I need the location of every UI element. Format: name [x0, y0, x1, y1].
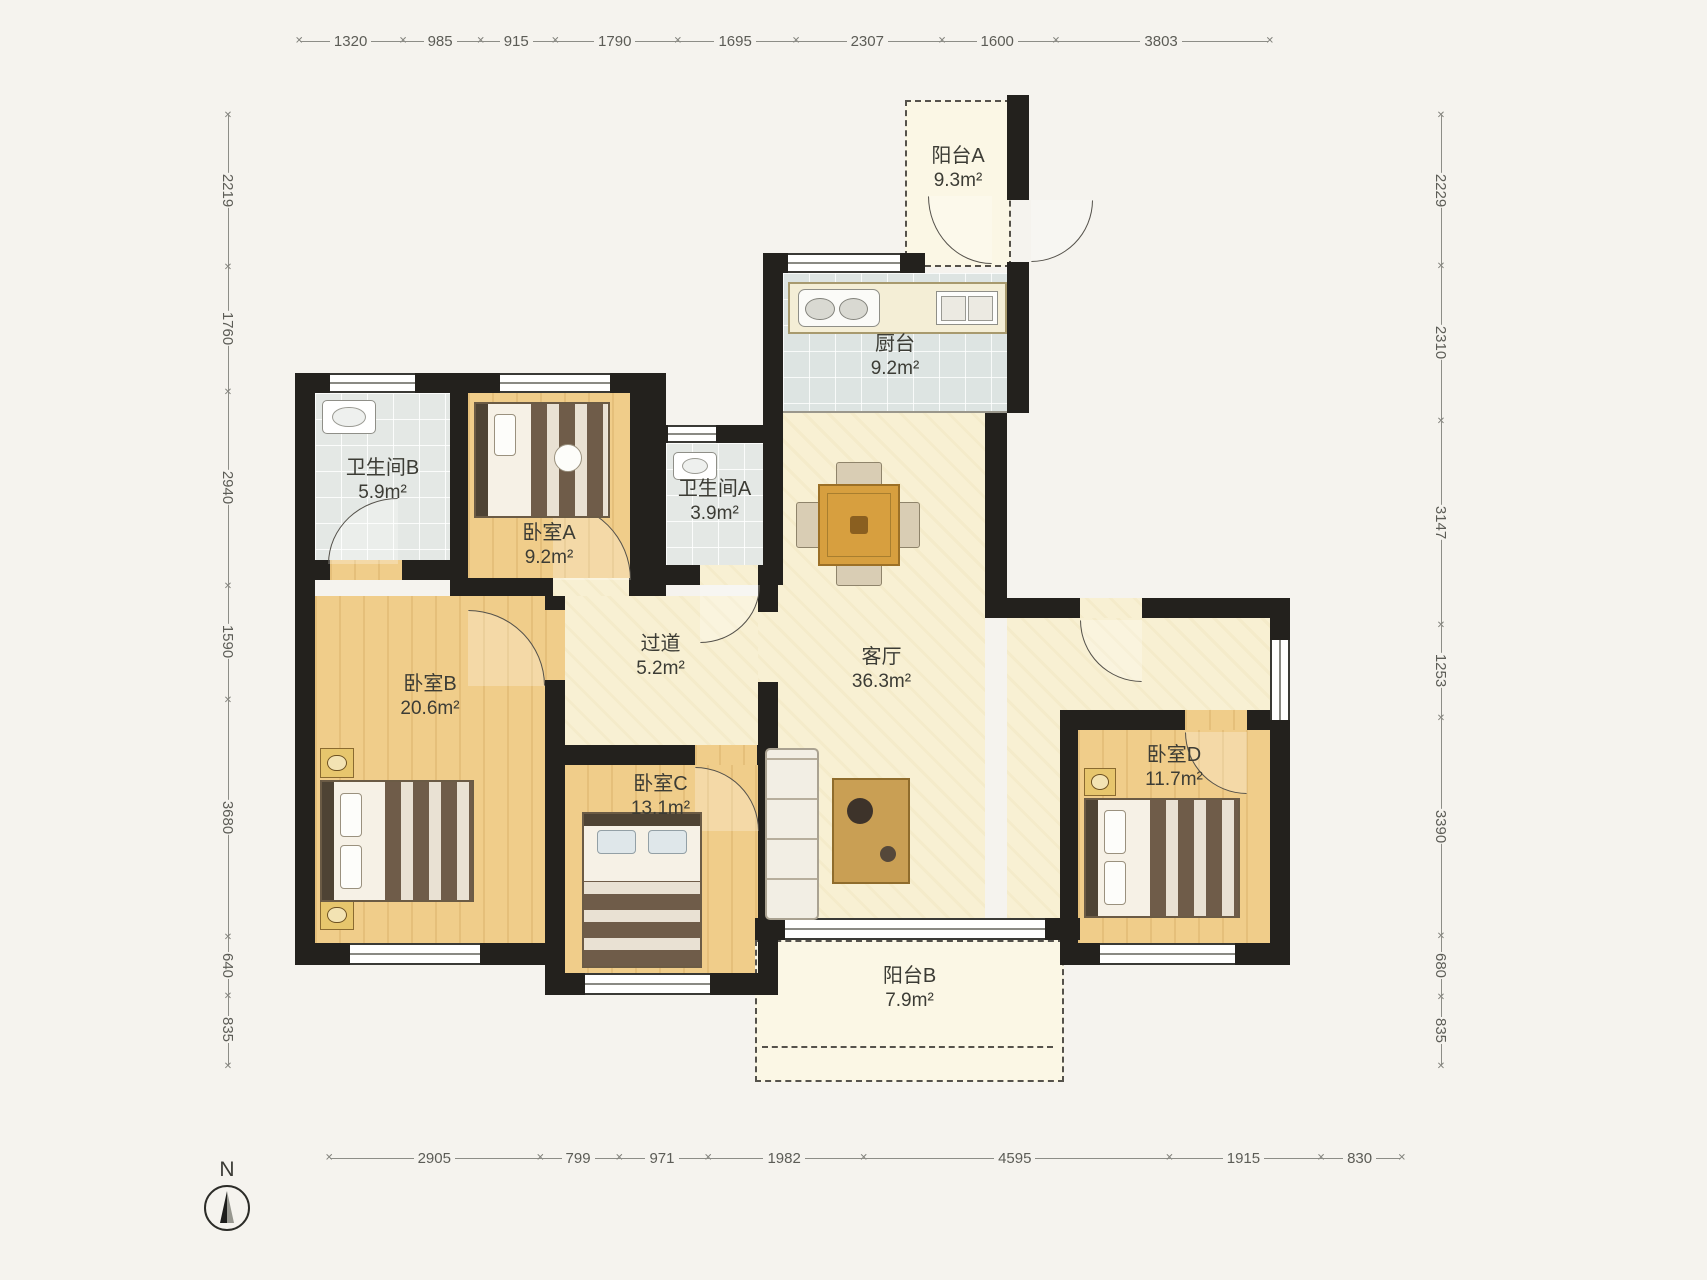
room-name: 厨台 [783, 332, 1007, 357]
dim-label: 3147 [1431, 504, 1452, 539]
window [330, 373, 415, 393]
room-name: 卫生间B [315, 456, 450, 481]
dim-segment: 835 [215, 995, 241, 1065]
room-area: 5.9m² [315, 481, 450, 505]
dim-label: 1982 [763, 1150, 804, 1167]
dining-set-icon [796, 462, 918, 584]
room-name: 卧室D [1078, 743, 1270, 768]
wall [630, 373, 648, 596]
window [585, 973, 710, 995]
compass-needle [220, 1191, 227, 1223]
window [1100, 943, 1235, 965]
nightstand-icon [320, 900, 354, 930]
room-name: 客厅 [778, 645, 985, 670]
north-label: N [200, 1158, 254, 1182]
dim-label: 1695 [714, 33, 755, 50]
dim-segment: 4595 [862, 1145, 1168, 1171]
room-area: 7.9m² [757, 989, 1062, 1013]
dim-label: 4595 [994, 1150, 1035, 1167]
dim-segment: 1760 [215, 266, 241, 390]
wall [450, 373, 468, 578]
dim-label: 1320 [330, 33, 371, 50]
dim-segment: 3680 [215, 699, 241, 936]
dim-label: 2940 [218, 470, 239, 505]
dim-label: 1790 [594, 33, 635, 50]
dim-label: 2307 [847, 33, 888, 50]
room-name: 过道 [563, 632, 758, 657]
wall [985, 413, 1007, 618]
dim-label: 640 [218, 952, 239, 979]
dim-label: 1915 [1223, 1150, 1264, 1167]
dim-label: 2905 [414, 1150, 455, 1167]
bed-icon-bedroom-d [1084, 798, 1240, 918]
dim-segment: 1253 [1428, 624, 1454, 718]
dim-label: 835 [218, 1016, 239, 1043]
wall [648, 393, 666, 583]
room-area: 9.3m² [907, 169, 1009, 193]
dim-label: 1600 [977, 33, 1018, 50]
dim-segment: 1590 [215, 585, 241, 699]
dim-segment: 971 [618, 1145, 707, 1171]
wall [1007, 262, 1029, 413]
dim-label: 680 [1431, 952, 1452, 979]
room-area: 9.2m² [468, 546, 630, 570]
dim-segment: 3803 [1054, 28, 1268, 54]
dim-segment: 985 [401, 28, 479, 54]
floorplan-canvas: 1320 985 915 1790 1695 2307 1600 3803 22… [0, 0, 1707, 1280]
dining-table-icon [818, 484, 900, 566]
door-opening [553, 578, 629, 596]
sofa-icon [765, 748, 819, 920]
kitchen-counter-icon [788, 282, 1007, 334]
dim-segment: 835 [1428, 996, 1454, 1065]
dimension-chain-left: 2219 1760 2940 1590 3680 640 835 [215, 115, 241, 1065]
door-opening [545, 610, 565, 680]
dim-segment: 3390 [1428, 717, 1454, 935]
dim-segment: 1695 [676, 28, 794, 54]
dim-label: 2310 [1431, 325, 1452, 360]
window [1270, 640, 1290, 720]
dim-segment: 640 [215, 936, 241, 995]
bed-icon-bedroom-b [320, 780, 474, 902]
dim-segment: 830 [1319, 1145, 1400, 1171]
door-opening [700, 565, 758, 585]
door-opening [758, 612, 778, 682]
dim-label: 3390 [1431, 809, 1452, 844]
room-area: 36.3m² [778, 670, 985, 694]
washbasin-icon [673, 452, 717, 480]
room-name: 卧室C [563, 772, 758, 797]
dim-segment: 2310 [1428, 265, 1454, 420]
window [788, 253, 900, 273]
stove-icon [798, 289, 880, 327]
window [785, 918, 1045, 940]
dim-label: 985 [424, 33, 457, 50]
room-area: 3.9m² [666, 502, 763, 526]
dim-segment: 680 [1428, 935, 1454, 995]
dim-segment: 2940 [215, 391, 241, 585]
room-area: 11.7m² [1078, 768, 1270, 792]
dim-segment: 3147 [1428, 420, 1454, 624]
nightstand-icon [320, 748, 354, 778]
coffee-table-icon [832, 778, 910, 884]
dim-segment: 2307 [794, 28, 940, 54]
dim-label: 1760 [218, 311, 239, 346]
dim-segment: 1915 [1168, 1145, 1320, 1171]
room-name: 卫生间A [666, 477, 763, 502]
wall [1007, 95, 1029, 200]
door-opening [1080, 598, 1142, 618]
room-area: 9.2m² [783, 357, 1007, 381]
window [668, 425, 716, 443]
dim-segment: 1600 [940, 28, 1054, 54]
dim-label: 1590 [218, 624, 239, 659]
dim-label: 2219 [218, 173, 239, 208]
dim-label: 830 [1343, 1150, 1376, 1167]
north-indicator: N [200, 1158, 254, 1231]
wall [763, 253, 783, 583]
room-name: 阳台A [907, 144, 1009, 169]
room-balcony-b: 阳台B7.9m² [755, 940, 1064, 1082]
window [350, 943, 480, 965]
room-name: 卧室A [468, 521, 630, 546]
floor-boundary-line [783, 411, 1007, 413]
bed-icon-bedroom-a [474, 402, 610, 518]
compass-icon [204, 1185, 250, 1231]
room-name: 阳台B [757, 964, 1062, 989]
dim-segment: 1790 [553, 28, 676, 54]
room-area: 13.1m² [563, 797, 758, 821]
dim-segment: 2219 [215, 115, 241, 266]
dim-label: 799 [562, 1150, 595, 1167]
dimension-chain-bottom: 2905 799 971 1982 4595 1915 830 [330, 1145, 1400, 1171]
dim-label: 3680 [218, 800, 239, 835]
balcony-rail-line [762, 1046, 1053, 1048]
dim-label: 2229 [1431, 172, 1452, 207]
dim-label: 3803 [1140, 33, 1181, 50]
dim-segment: 2229 [1428, 115, 1454, 265]
washbasin-icon [322, 400, 376, 434]
dim-label: 1253 [1431, 653, 1452, 688]
dim-segment: 2905 [330, 1145, 539, 1171]
compass-needle [227, 1191, 234, 1223]
door-arc-entry [1031, 200, 1093, 262]
bed-icon-bedroom-c [582, 812, 702, 968]
dim-segment: 799 [539, 1145, 618, 1171]
dim-label: 835 [1431, 1017, 1452, 1044]
door-opening [1185, 710, 1247, 730]
door-opening [695, 745, 757, 765]
room-area: 20.6m² [315, 697, 545, 721]
dim-segment: 1982 [706, 1145, 861, 1171]
dim-segment: 1320 [300, 28, 401, 54]
dim-segment: 915 [479, 28, 554, 54]
sink-icon [936, 291, 998, 325]
wall [295, 373, 315, 965]
room-name: 卧室B [315, 672, 545, 697]
room-area: 5.2m² [563, 657, 758, 681]
dim-label: 971 [645, 1150, 678, 1167]
window [500, 373, 610, 393]
dimension-chain-right: 2229 2310 3147 1253 3390 680 835 [1428, 115, 1454, 1065]
dim-label: 915 [500, 33, 533, 50]
dimension-chain-top: 1320 985 915 1790 1695 2307 1600 3803 [300, 28, 1268, 54]
